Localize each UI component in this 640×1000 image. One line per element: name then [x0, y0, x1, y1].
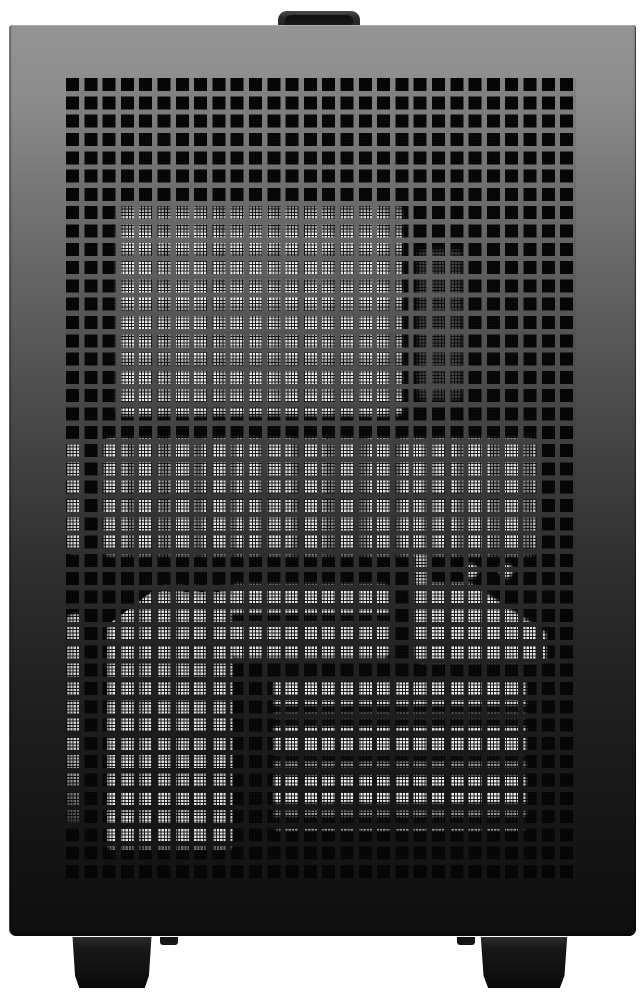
perforated-grid-overlay	[66, 78, 576, 878]
left-foot-tab	[160, 937, 178, 945]
front-mesh-window	[66, 78, 576, 878]
pc-case-front-panel	[9, 25, 636, 936]
product-photo	[0, 0, 640, 1000]
right-foot-tab	[457, 937, 475, 945]
right-foot	[478, 937, 570, 988]
left-foot	[70, 937, 154, 988]
